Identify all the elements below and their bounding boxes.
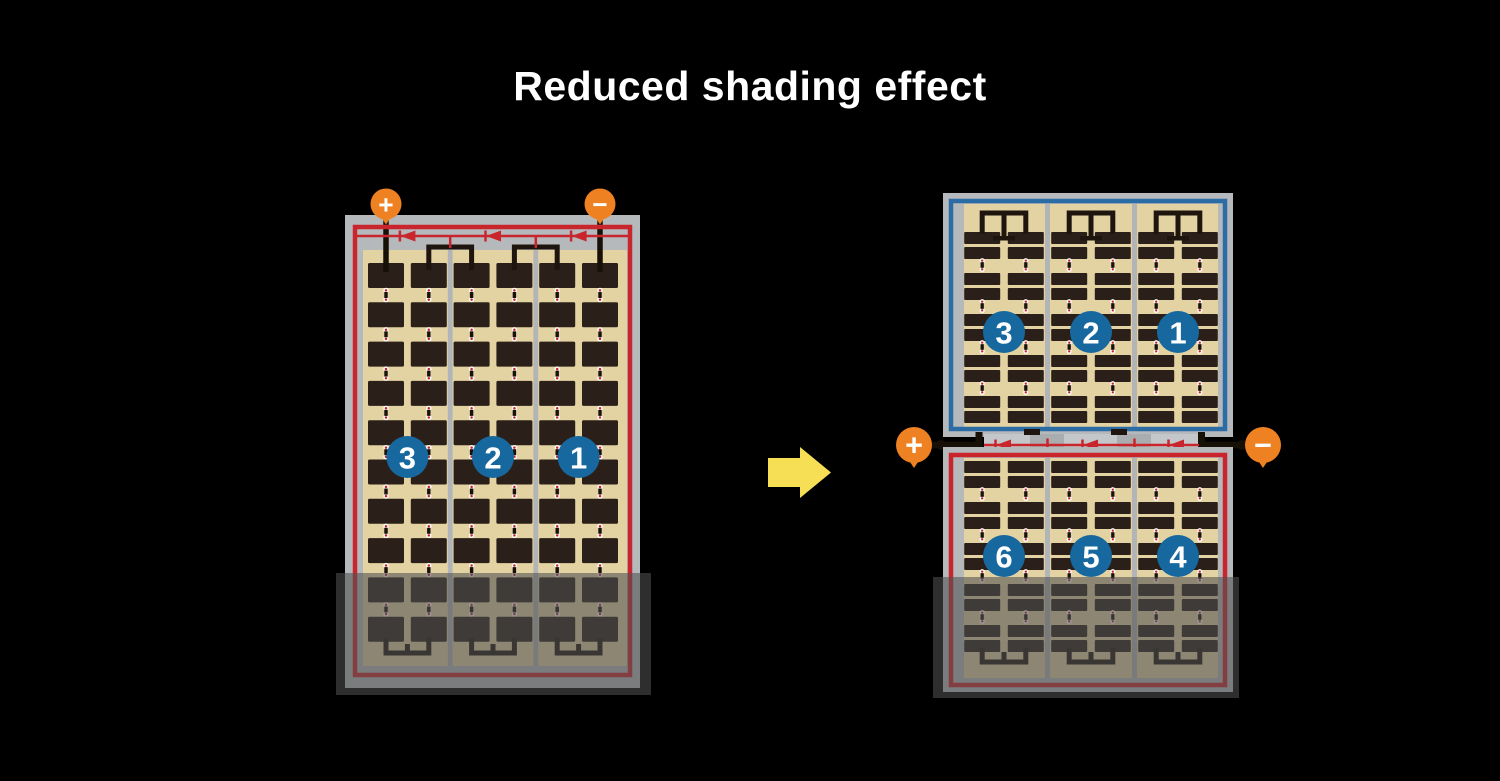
badge-number: 1 (570, 441, 587, 476)
solar-cell (582, 302, 618, 327)
half-cell (1008, 502, 1044, 514)
half-cell (964, 288, 1000, 300)
solar-cell (368, 381, 404, 406)
terminal-sign: − (592, 190, 607, 220)
half-cell (964, 273, 1000, 285)
string-number-badge: 1 (558, 436, 600, 478)
badge-number: 3 (995, 316, 1012, 351)
half-cell (964, 370, 1000, 382)
solar-cell (539, 342, 575, 367)
top-busbar-foot (993, 236, 1015, 241)
half-cell (1182, 411, 1218, 423)
half-cell (1095, 396, 1131, 408)
solar-cell (582, 381, 618, 406)
half-cell (964, 517, 1000, 529)
string-number-badge: 2 (472, 436, 514, 478)
half-cell (964, 476, 1000, 488)
half-cell (1095, 355, 1131, 367)
solar-cell (582, 342, 618, 367)
half-cell (1095, 517, 1131, 529)
badge-number: 6 (995, 540, 1012, 575)
top-busbar-foot (1167, 236, 1189, 241)
half-cell (1182, 288, 1218, 300)
string-number-badge: 5 (1070, 535, 1112, 577)
half-cell (1138, 247, 1174, 259)
half-cell (1138, 476, 1174, 488)
half-cell (1051, 396, 1087, 408)
solar-cell (539, 499, 575, 524)
half-cell (1008, 273, 1044, 285)
half-cell (1095, 461, 1131, 473)
solar-cell (411, 302, 447, 327)
half-cell (1051, 411, 1087, 423)
junction-tab (1111, 429, 1127, 435)
half-cell (1051, 247, 1087, 259)
string-number-badge: 3 (386, 436, 428, 478)
solar-cell (411, 381, 447, 406)
stage: Reduced shading effect +−321321+−654 (0, 0, 1500, 781)
half-cell (1051, 273, 1087, 285)
half-cell (1051, 370, 1087, 382)
solar-cell (582, 538, 618, 563)
string-divider (1045, 204, 1050, 428)
half-cell (1095, 502, 1131, 514)
solar-cell (368, 538, 404, 563)
half-cell (1182, 476, 1218, 488)
solar-cell (454, 538, 490, 563)
half-cell (1138, 411, 1174, 423)
solar-cell (539, 381, 575, 406)
half-cell (1051, 517, 1087, 529)
half-cell (1095, 411, 1131, 423)
string-number-badge: 4 (1157, 535, 1199, 577)
solar-cell (411, 499, 447, 524)
half-cell (1138, 355, 1174, 367)
terminal-sign: + (905, 429, 923, 463)
badge-number: 2 (1082, 316, 1099, 351)
shading-overlay (336, 573, 651, 695)
solar-cell (496, 499, 532, 524)
string-number-badge: 1 (1157, 311, 1199, 353)
half-cell (1138, 288, 1174, 300)
half-cell (1051, 355, 1087, 367)
half-cell (1008, 288, 1044, 300)
half-cell (964, 411, 1000, 423)
badge-number: 5 (1082, 540, 1099, 575)
half-cell (1138, 273, 1174, 285)
solar-cell (496, 538, 532, 563)
half-cell (964, 247, 1000, 259)
solar-cell (582, 499, 618, 524)
half-cell (1095, 288, 1131, 300)
string-number-badge: 3 (983, 311, 1025, 353)
half-cell (1138, 461, 1174, 473)
badge-number: 2 (484, 441, 501, 476)
half-cell (1182, 355, 1218, 367)
terminal-sign: + (378, 190, 393, 220)
half-cell (1008, 476, 1044, 488)
solar-cell (454, 499, 490, 524)
half-cell (1095, 476, 1131, 488)
top-busbar-foot (1080, 236, 1102, 241)
badge-number: 3 (399, 441, 416, 476)
half-cell (1182, 502, 1218, 514)
negative-terminal: − (1245, 427, 1281, 468)
half-cell (1008, 517, 1044, 529)
shading-overlay (933, 577, 1239, 698)
half-cell (1051, 502, 1087, 514)
half-cell (1138, 517, 1174, 529)
junction-tab (1024, 429, 1040, 435)
right-panel: 321+−654 (896, 193, 1281, 698)
half-cell (1008, 411, 1044, 423)
transform-arrow-icon (768, 447, 831, 498)
solar-cell (496, 302, 532, 327)
half-cell (1095, 370, 1131, 382)
half-cell (1182, 247, 1218, 259)
solar-cell (539, 538, 575, 563)
solar-cell (496, 381, 532, 406)
half-cell (1008, 461, 1044, 473)
half-cell (1095, 273, 1131, 285)
half-cell (1182, 273, 1218, 285)
shading-diagram: +−321321+−654 (0, 0, 1500, 781)
half-cell (1008, 396, 1044, 408)
solar-cell (368, 342, 404, 367)
half-cell (1051, 476, 1087, 488)
string-number-badge: 6 (983, 535, 1025, 577)
half-cell (1051, 288, 1087, 300)
half-cell (1182, 370, 1218, 382)
half-cell (964, 502, 1000, 514)
solar-cell (454, 302, 490, 327)
half-cell (1182, 517, 1218, 529)
half-cell (1008, 247, 1044, 259)
half-cell (1095, 247, 1131, 259)
solar-cell (411, 342, 447, 367)
solar-cell (411, 538, 447, 563)
left-panel: +−321 (336, 189, 651, 696)
half-cell (964, 355, 1000, 367)
solar-cell (368, 499, 404, 524)
half-cell (1182, 461, 1218, 473)
half-cell (964, 396, 1000, 408)
badge-number: 4 (1169, 540, 1187, 575)
half-cell (1008, 355, 1044, 367)
half-cell (1138, 502, 1174, 514)
half-cell (1138, 370, 1174, 382)
half-cell (1008, 370, 1044, 382)
badge-number: 1 (1169, 316, 1186, 351)
solar-cell (368, 302, 404, 327)
solar-cell (454, 381, 490, 406)
string-number-badge: 2 (1070, 311, 1112, 353)
half-cell (1182, 396, 1218, 408)
half-cell (964, 461, 1000, 473)
string-divider (1132, 204, 1137, 428)
right-panel-top-half: 321 (943, 193, 1233, 437)
solar-cell (539, 302, 575, 327)
terminal-sign: − (1254, 429, 1272, 463)
half-cell (1051, 461, 1087, 473)
positive-terminal: + (896, 427, 932, 468)
solar-cell (496, 342, 532, 367)
solar-cell (454, 342, 490, 367)
half-cell (1138, 396, 1174, 408)
